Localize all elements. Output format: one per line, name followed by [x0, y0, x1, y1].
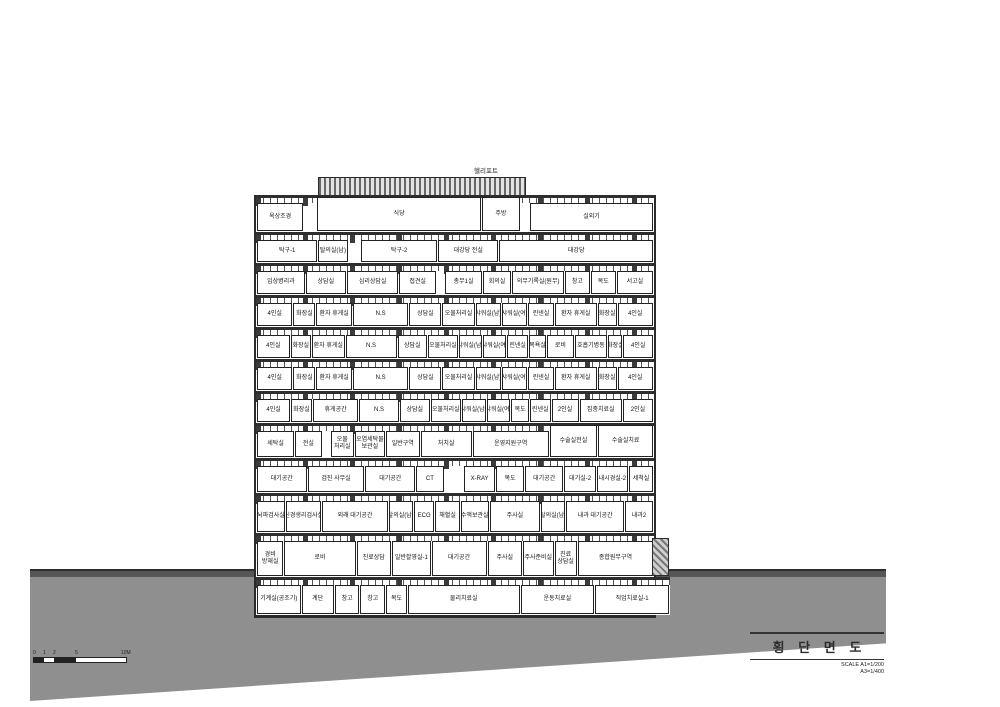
room-label: 수액보관실: [461, 513, 489, 520]
room-label: 2인실: [558, 407, 572, 414]
room-label: CT: [426, 476, 434, 483]
room-cell: 경비방재실: [257, 541, 283, 576]
room-label: 목욕실: [529, 343, 546, 350]
room-label: N.S: [376, 311, 386, 318]
room-cell: 오물처리실: [442, 367, 474, 390]
room-cell: 창고: [335, 585, 360, 614]
drawing-title: 횡 단 면 도: [750, 634, 884, 659]
room-label: 상담실: [557, 559, 574, 566]
room-cell: 실외기: [530, 203, 653, 231]
room-cell: 뇌파검사실: [257, 501, 285, 532]
room-label: 복도: [598, 279, 609, 286]
room-cell: 샤워실(여): [502, 367, 527, 390]
room-label: 상담실: [417, 311, 434, 318]
scale-bar-segment: [54, 658, 76, 662]
room-label: 창고: [572, 279, 583, 286]
room-cell: 2인실: [552, 399, 579, 422]
room-label: 수술실전실: [560, 438, 588, 445]
scale-bar-tick-label: 2: [53, 650, 56, 656]
room-cell: 화장실: [291, 399, 312, 422]
floor-row-f10: 임상병리과상담실심리상담실접견실총무1실회의실의무기록실(원무)창고복도서고실: [256, 263, 654, 295]
room-label: X-RAY: [471, 476, 489, 483]
room-label: 처리실: [334, 444, 351, 451]
room-label: 직업치료실-1: [616, 596, 649, 603]
room-label: 4인실: [631, 343, 645, 350]
room-cell: 탈의실(남): [541, 501, 565, 532]
room-cell: 오물처리실: [428, 335, 458, 358]
room-label: 내과 대기공간: [578, 513, 613, 520]
room-cell: 린넨실: [507, 335, 527, 358]
room-label: 린넨실: [509, 343, 526, 350]
room-label: 신경생리검사실: [286, 513, 321, 520]
room-cell: 4인실: [257, 399, 290, 422]
room-label: 휴게공간: [325, 407, 347, 414]
title-rule-bottom: [750, 659, 884, 660]
room-cell: 대기공간: [525, 466, 564, 492]
room-label: 환자 휴게실: [561, 311, 590, 318]
room-cell: 창고: [565, 271, 590, 294]
room-cell: 외래 대기공간: [322, 501, 387, 532]
room-label: 집중치료실: [587, 407, 615, 414]
room-cell: 임상병리과: [257, 271, 305, 294]
room-label: 4인실: [268, 311, 282, 318]
room-label: 심리상담실: [359, 279, 387, 286]
floor-row-ward-d: 4인실화장실휴게공간N.S상담실오물처리실샤워실(남)샤워실(여)복도린넨실2인…: [256, 391, 654, 423]
room-cell: 4인실: [618, 367, 653, 390]
room-cell: 진료상담실: [555, 541, 577, 576]
room-cell: 주사준비실: [523, 541, 553, 576]
room-label: 상담실: [417, 375, 434, 382]
room-label: 오물처리실: [445, 375, 473, 382]
room-label: 종합원무구역: [599, 555, 632, 562]
scale-bar-segment: [76, 658, 126, 662]
room-cell: 물리치료실: [408, 585, 520, 614]
room-label: 검진 사무실: [321, 476, 350, 483]
room-cell: 운동치료실: [521, 585, 595, 614]
room-label: 환자 휴게실: [320, 311, 349, 318]
room-label: 4인실: [628, 375, 642, 382]
room-cell: 샤워실(남): [459, 335, 482, 358]
room-cell: 린넨실: [528, 367, 553, 390]
room-cell: 샤워실(여): [502, 303, 527, 326]
room-label: 총무1실: [454, 279, 474, 286]
ground-band-left: [30, 571, 254, 577]
room-cell: 목욕실: [529, 335, 546, 358]
room-cell: 오물처리실: [331, 431, 354, 457]
room-label: 복도: [391, 596, 402, 603]
room-cell: 4인실: [257, 367, 292, 390]
room-label: 의무기록실(원무): [517, 279, 560, 286]
scale-note-line1: SCALE A1=1/200: [750, 662, 884, 669]
scale-bar-segments: [33, 657, 127, 663]
room-label: 대기공간: [379, 476, 401, 483]
room-cell: 4인실: [257, 303, 292, 326]
room-cell: 수술실전실: [550, 425, 598, 457]
floor-row-f11: 탁구-1탈의실(남)탁구-2대강당 전실대강당: [256, 232, 654, 263]
building-section: 헬리포트 옥상조경식당주방실외기탁구-1탈의실(남)탁구-2대강당 전실대강당임…: [254, 164, 656, 618]
room-cell: 샤워실(남): [462, 399, 486, 422]
room-label: 식당: [394, 211, 405, 218]
room-cell: 수액보관실: [461, 501, 489, 532]
room-label: 수술실치료: [612, 438, 640, 445]
room-label: 오물처리실: [432, 407, 460, 414]
room-cell: 상담실: [409, 367, 441, 390]
stair-tower: [652, 538, 669, 576]
room-label: 화장실: [293, 343, 310, 350]
room-label: 샤워실(남): [476, 311, 501, 318]
room-label: 샤워실(남): [462, 407, 486, 414]
room-cell: 2인실: [623, 399, 653, 422]
room-label: 일반구역: [392, 441, 414, 448]
room-label: 대기실-2: [569, 476, 591, 483]
room-cell: 계단: [302, 585, 334, 614]
room-spacer: [521, 203, 529, 231]
room-cell: 일반촬영실-1: [392, 541, 431, 576]
room-label: 외래 대기공간: [338, 513, 373, 520]
roof-zone: 헬리포트: [254, 164, 656, 195]
room-label: 접견실: [409, 279, 426, 286]
room-cell: 식당: [317, 197, 480, 231]
floor-row-f3: 대기공간검진 사무실대기공간CTX-RAY복도대기공간대기실-2내시경실-2세척…: [256, 458, 654, 493]
room-cell: ECG: [414, 501, 435, 532]
room-cell: 상담실: [400, 399, 430, 422]
room-cell: 상담실: [409, 303, 441, 326]
room-label: 주사실: [496, 555, 513, 562]
room-cell: 내과 대기공간: [566, 501, 624, 532]
room-label: 탈의실(남): [541, 513, 565, 520]
room-label: 환자 휴게실: [314, 343, 343, 350]
room-label: 처치실: [438, 441, 455, 448]
room-cell: X-RAY: [464, 466, 495, 492]
room-cell: 화장실: [291, 335, 311, 358]
room-cell: 복도: [591, 271, 616, 294]
room-label: 린넨실: [532, 407, 549, 414]
room-label: N.S: [366, 343, 376, 350]
room-label: 오염세탁물: [356, 437, 384, 444]
room-spacer: [304, 203, 316, 231]
title-block: 횡 단 면 도 SCALE A1=1/200 A3=1/400: [750, 632, 884, 676]
floor-stack: 옥상조경식당주방실외기탁구-1탈의실(남)탁구-2대강당 전실대강당임상병리과상…: [254, 195, 656, 618]
room-label: 진료상담: [363, 555, 385, 562]
room-label: 세척실: [633, 476, 650, 483]
room-label: 보관실: [362, 444, 379, 451]
room-cell: 대기실-2: [564, 466, 595, 492]
scale-bar-tick-label: 1: [43, 650, 46, 656]
room-label: 대강당 전실: [454, 248, 483, 255]
floor-row-b1: 기계실(공조기)계단창고창고복도물리치료실운동치료실직업치료실-1: [256, 577, 670, 615]
room-cell: 화장실: [598, 367, 617, 390]
room-label: 전실: [303, 441, 314, 448]
room-label: 물리치료실: [450, 596, 478, 603]
room-cell: 주사실: [490, 501, 540, 532]
room-cell: 오물처리실: [431, 399, 461, 422]
room-cell: N.S: [359, 399, 398, 422]
room-label: 환자 휴게실: [320, 375, 349, 382]
scale-note-line2: A3=1/400: [750, 669, 884, 676]
room-cell: 4인실: [623, 335, 653, 358]
room-label: 진료: [560, 552, 571, 559]
room-cell: 복도: [386, 585, 407, 614]
room-label: 주방: [495, 211, 506, 218]
room-cell: 대강당: [499, 240, 653, 262]
room-label: 샤워실(여): [502, 375, 527, 382]
room-cell: N.S: [353, 303, 408, 326]
room-cell: 기계실(공조기): [257, 585, 301, 614]
room-label: 상담실: [404, 343, 421, 350]
room-spacer: [349, 240, 361, 262]
scale-bar-labels: 012510M: [33, 650, 153, 657]
room-label: 운영지원구역: [494, 441, 527, 448]
room-label: 화장실: [599, 311, 616, 318]
graphic-scale-bar: 012510M: [33, 650, 153, 663]
room-cell: 창고: [360, 585, 385, 614]
room-label: 대강당: [568, 248, 585, 255]
room-label: 호흡기병동: [577, 343, 605, 350]
room-cell: CT: [416, 466, 444, 492]
room-label: 내과2: [632, 513, 646, 520]
room-label: 상담실: [406, 407, 423, 414]
room-label: 옥상조경: [269, 214, 291, 221]
room-cell: 탁구-2: [361, 240, 437, 262]
scale-bar-tick-label: 5: [75, 650, 78, 656]
room-label: 창고: [342, 596, 353, 603]
room-label: ECG: [418, 513, 431, 520]
room-label: 2인실: [631, 407, 645, 414]
ground-band-right: [656, 571, 886, 577]
room-label: 린넨실: [533, 375, 550, 382]
room-cell: 신경생리검사실: [286, 501, 321, 532]
room-cell: 일반구역: [386, 431, 420, 457]
room-label: 내시경실-2: [599, 476, 626, 483]
room-label: 환자 휴게실: [561, 375, 590, 382]
room-cell: 환자 휴게실: [312, 335, 345, 358]
room-cell: 오염세탁물보관실: [355, 431, 385, 457]
room-cell: 전실: [295, 431, 322, 457]
room-label: N.S: [374, 407, 384, 414]
room-spacer: [445, 466, 463, 492]
room-label: 대기공간: [448, 555, 470, 562]
room-cell: 샤워실(여): [483, 335, 506, 358]
room-cell: 탁구-1: [257, 240, 317, 262]
scale-bar-tick-label: 0: [33, 650, 36, 656]
floor-row-roof: 옥상조경식당주방실외기: [256, 195, 654, 232]
room-label: 화장실: [599, 375, 616, 382]
room-label: 샤워실(여): [502, 311, 527, 318]
room-cell: 탈의실(남): [389, 501, 413, 532]
floor-row-f2: 뇌파검사실신경생리검사실외래 대기공간탈의실(남)ECG채혈실수액보관실주사실탈…: [256, 493, 654, 533]
room-cell: 환자 휴게실: [555, 303, 597, 326]
room-cell: 화장실: [293, 367, 315, 390]
room-label: N.S: [376, 375, 386, 382]
room-label: 로비: [555, 343, 566, 350]
room-cell: 종합원무구역: [578, 541, 653, 576]
room-cell: 4인실: [257, 335, 290, 358]
room-label: 화장실: [296, 311, 313, 318]
room-cell: 심리상담실: [347, 271, 399, 294]
room-cell: 직업치료실-1: [595, 585, 669, 614]
roof-structure-label: 헬리포트: [474, 165, 498, 175]
room-label: 탁구-2: [391, 248, 407, 255]
room-cell: 주사실: [488, 541, 523, 576]
floor-row-ward-b: 4인실화장실환자 휴게실N.S상담실오물처리실샤워실(남)샤워실(여)린넨실목욕…: [256, 327, 654, 359]
room-cell: 환자 휴게실: [316, 303, 351, 326]
room-cell: 상담실: [306, 271, 346, 294]
room-label: 린넨실: [533, 311, 550, 318]
room-cell: 화장실: [608, 335, 622, 358]
room-cell: 화장실: [293, 303, 315, 326]
room-label: 경비: [265, 552, 276, 559]
scale-bar-segment: [44, 658, 54, 662]
room-label: 대기공간: [533, 476, 555, 483]
room-cell: 복도: [511, 399, 529, 422]
floor-row-ward-c: 4인실화장실환자 휴게실N.S상담실오물처리실샤워실(남)샤워실(여)린넨실환자…: [256, 359, 654, 391]
room-label: 계단: [312, 596, 323, 603]
room-cell: 샤워실(남): [476, 303, 501, 326]
room-cell: 서고실: [617, 271, 653, 294]
room-cell: 화장실: [598, 303, 617, 326]
room-cell: 탈의실(남): [318, 240, 347, 262]
room-cell: 세탁실: [257, 431, 294, 457]
scale-bar-segment: [34, 658, 44, 662]
room-cell: 접견실: [399, 271, 435, 294]
room-cell: 운영지원구역: [473, 431, 549, 457]
room-cell: N.S: [353, 367, 408, 390]
room-cell: 대강당 전실: [438, 240, 498, 262]
room-label: 샤워실(여): [483, 343, 506, 350]
room-cell: 상담실: [398, 335, 428, 358]
floor-row-ward-a: 4인실화장실환자 휴게실N.S상담실오물처리실샤워실(남)샤워실(여)린넨실환자…: [256, 295, 654, 327]
room-label: 뇌파검사실: [257, 513, 285, 520]
room-cell: 대기공간: [257, 466, 307, 492]
room-label: 탈의실(남): [320, 248, 346, 255]
room-cell: N.S: [346, 335, 397, 358]
room-label: 주사준비실: [524, 555, 552, 562]
room-cell: 휴게공간: [313, 399, 359, 422]
room-label: 샤워실(남): [459, 343, 482, 350]
room-label: 화장실: [608, 343, 622, 350]
room-cell: 세척실: [629, 466, 653, 492]
room-label: 상담실: [318, 279, 335, 286]
room-label: 화장실: [293, 407, 310, 414]
room-cell: 린넨실: [528, 303, 553, 326]
room-cell: 로비: [284, 541, 355, 576]
room-cell: 회의실: [483, 271, 512, 294]
room-cell: 오물처리실: [442, 303, 474, 326]
room-label: 채혈실: [439, 513, 456, 520]
room-label: 탈의실(남): [389, 513, 413, 520]
room-label: 주사실: [507, 513, 524, 520]
room-label: 창고: [367, 596, 378, 603]
room-label: 회의실: [489, 279, 506, 286]
scale-bar-tick-label: 10M: [121, 650, 131, 656]
room-label: 오물: [337, 437, 348, 444]
room-cell: 진료상담: [357, 541, 392, 576]
floor-row-f1: 경비방재실로비진료상담일반촬영실-1대기공간주사실주사준비실진료상담실종합원무구…: [256, 533, 654, 577]
room-label: 오물처리실: [445, 311, 473, 318]
room-label: 실외기: [583, 214, 600, 221]
room-cell: 채혈실: [435, 501, 459, 532]
room-cell: 내시경실-2: [597, 466, 628, 492]
room-label: 대기공간: [271, 476, 293, 483]
room-label: 세탁실: [267, 441, 284, 448]
room-cell: 의무기록실(원무): [512, 271, 564, 294]
room-cell: 집중치료실: [580, 399, 622, 422]
room-cell: 복도: [496, 466, 524, 492]
room-label: 복도: [505, 476, 516, 483]
room-cell: 린넨실: [530, 399, 551, 422]
room-label: 기계실(공조기): [260, 596, 297, 603]
room-label: 서고실: [627, 279, 644, 286]
room-cell: 호흡기병동: [575, 335, 608, 358]
room-cell: 대기공간: [365, 466, 415, 492]
room-cell: 처치실: [421, 431, 472, 457]
room-label: 로비: [314, 555, 325, 562]
room-cell: 총무1실: [445, 271, 481, 294]
roof-canopy-structure: [318, 177, 526, 198]
room-cell: 샤워실(여): [487, 399, 511, 422]
room-label: 화장실: [296, 375, 313, 382]
room-label: 오물처리실: [429, 343, 457, 350]
room-cell: 옥상조경: [257, 203, 303, 231]
room-label: 복도: [515, 407, 526, 414]
room-label: 4인실: [268, 375, 282, 382]
room-cell: 수술실치료: [598, 425, 653, 457]
room-label: 4인실: [266, 343, 280, 350]
room-cell: 4인실: [618, 303, 653, 326]
room-label: 4인실: [266, 407, 280, 414]
room-spacer: [323, 431, 330, 457]
room-cell: 검진 사무실: [308, 466, 365, 492]
room-label: 탁구-1: [279, 248, 295, 255]
room-cell: 대기공간: [432, 541, 487, 576]
room-cell: 샤워실(남): [476, 367, 501, 390]
room-label: 4인실: [628, 311, 642, 318]
room-cell: 주방: [482, 197, 520, 231]
room-spacer: [437, 271, 445, 294]
room-cell: 환자 휴게실: [316, 367, 351, 390]
room-cell: 환자 휴게실: [555, 367, 597, 390]
room-label: 운동치료실: [544, 596, 572, 603]
room-label: 임상병리과: [267, 279, 295, 286]
room-label: 샤워실(여): [487, 407, 511, 414]
room-cell: 내과2: [625, 501, 653, 532]
room-label: 일반촬영실-1: [395, 555, 428, 562]
room-label: 샤워실(남): [476, 375, 501, 382]
floor-row-f4: 세탁실전실오물처리실오염세탁물보관실일반구역처치실운영지원구역수술실전실수술실치…: [256, 423, 654, 458]
room-label: 방재실: [262, 559, 279, 566]
room-cell: 로비: [547, 335, 573, 358]
